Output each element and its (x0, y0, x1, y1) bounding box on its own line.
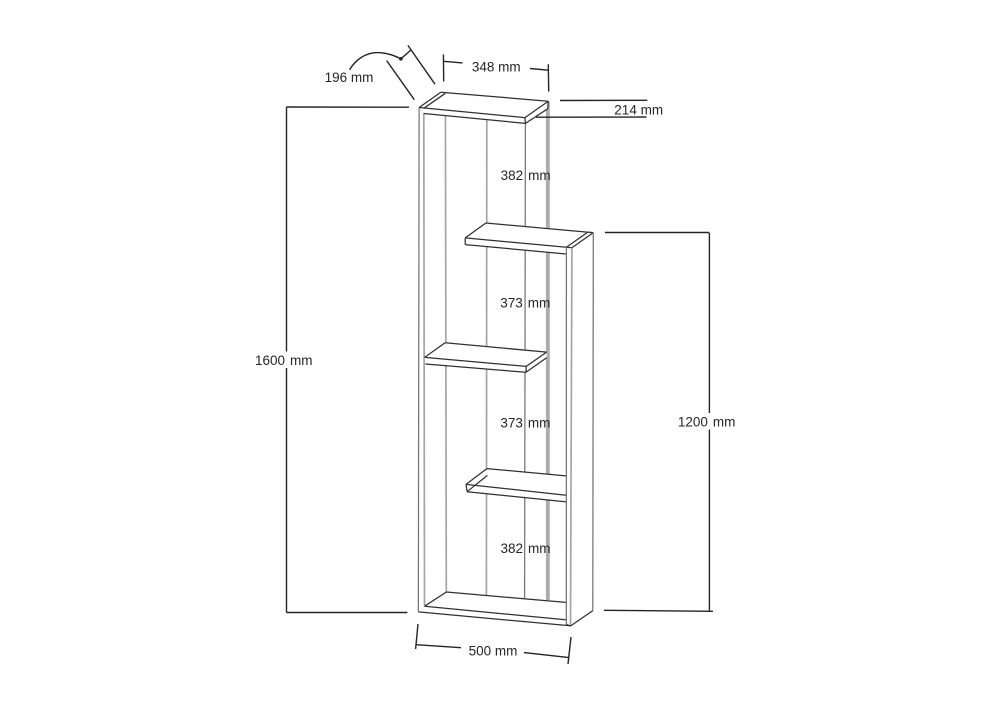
svg-text:1200: 1200 (678, 414, 708, 429)
svg-text:500 mm: 500 mm (469, 643, 518, 658)
svg-text:1600: 1600 (255, 353, 285, 368)
svg-text:214 mm: 214 mm (614, 103, 663, 118)
svg-text:mm: mm (528, 295, 551, 310)
svg-text:382: 382 (501, 168, 524, 183)
svg-text:373: 373 (500, 416, 523, 431)
svg-text:mm: mm (528, 168, 551, 183)
svg-text:mm: mm (713, 414, 736, 429)
svg-text:mm: mm (528, 541, 551, 556)
svg-text:382: 382 (500, 541, 523, 556)
svg-text:mm: mm (290, 353, 313, 368)
svg-text:196 mm: 196 mm (325, 70, 374, 85)
svg-text:373: 373 (500, 295, 523, 310)
svg-text:348 mm: 348 mm (472, 59, 521, 74)
svg-text:mm: mm (528, 416, 551, 431)
